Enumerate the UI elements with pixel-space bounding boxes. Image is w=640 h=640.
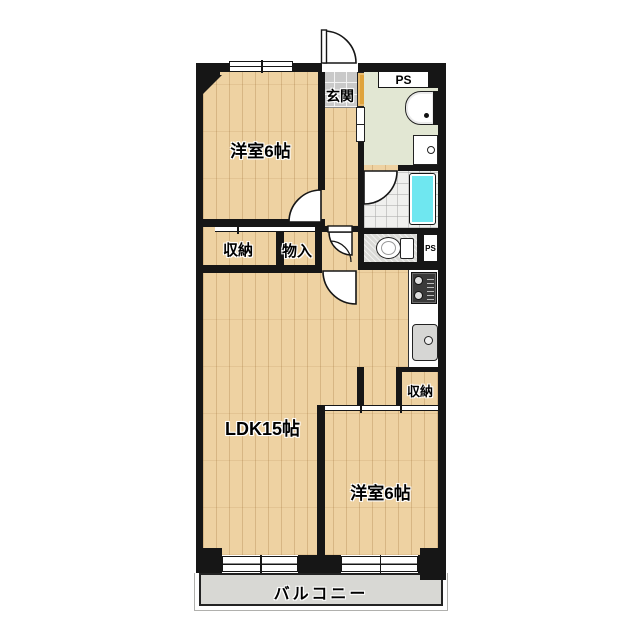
vanity-sink-icon (405, 91, 435, 125)
bathroom-door-swing-icon (362, 169, 400, 207)
bedroom2-opening-tick-1 (360, 403, 362, 413)
wall-kitchen-stub (357, 367, 364, 407)
window-bedroom2 (341, 556, 418, 572)
wall-washroom-bath (398, 165, 438, 171)
toilet-bowl-inner (381, 241, 396, 255)
wall-toilet-kitchen (358, 262, 446, 270)
balcony-label: バルコニー (199, 580, 443, 604)
bedroom2-opening-tick-2 (400, 403, 402, 413)
bedroom1-label: 洋室6帖 (203, 137, 318, 162)
stove-burner-2 (414, 291, 423, 300)
closet-left-label: 収納 (206, 239, 270, 260)
wall-kitchen-closet-top (396, 367, 446, 372)
bathtub-icon (409, 173, 436, 225)
closet-opening-line (215, 227, 315, 232)
floor-plan: PS PS 玄関 洋室6帖 収納 物入 収納 LDK15帖 洋室6帖 バルコニー (0, 0, 640, 640)
bedroom2-label: 洋室6帖 (323, 479, 438, 504)
wall-right (438, 63, 446, 580)
toilet-tank (400, 238, 414, 259)
closet-kitchen-label: 収納 (400, 381, 440, 400)
pipe-space-side: PS (423, 234, 438, 262)
wall-corner-chamfer (203, 75, 222, 94)
pipe-space-top-label: PS (395, 73, 411, 87)
stove-grill-lines (427, 276, 434, 300)
vanity-side-panel (433, 91, 438, 125)
closet-opening-tick (237, 224, 239, 234)
bedroom2-sliding-opening (325, 405, 438, 411)
wall-bottom-3 (418, 555, 446, 573)
ldk-door-swing-icon (320, 268, 360, 308)
kitchen-sink-drain (424, 336, 433, 345)
vanity-drain-dot (424, 113, 429, 118)
washing-machine-faucet-dot (427, 146, 435, 154)
closet-hall-label: 物入 (277, 240, 317, 261)
toilet-door-swing-icon (324, 224, 358, 266)
pipe-space-top: PS (378, 71, 429, 88)
genkan-label: 玄関 (322, 86, 358, 106)
wall-bottom-1 (196, 555, 222, 573)
window-top (229, 61, 293, 72)
washroom-sliding-door-line (357, 124, 364, 125)
ldk-label: LDK15帖 (205, 415, 320, 441)
bedroom1-door-swing-icon (286, 186, 326, 226)
stove-burner-1 (414, 276, 423, 285)
wall-closet-ldk (196, 265, 322, 273)
wall-left (196, 63, 203, 573)
window-ldk (222, 556, 298, 572)
entrance-door-swing-icon (318, 28, 362, 74)
pipe-space-side-label: PS (425, 244, 436, 253)
